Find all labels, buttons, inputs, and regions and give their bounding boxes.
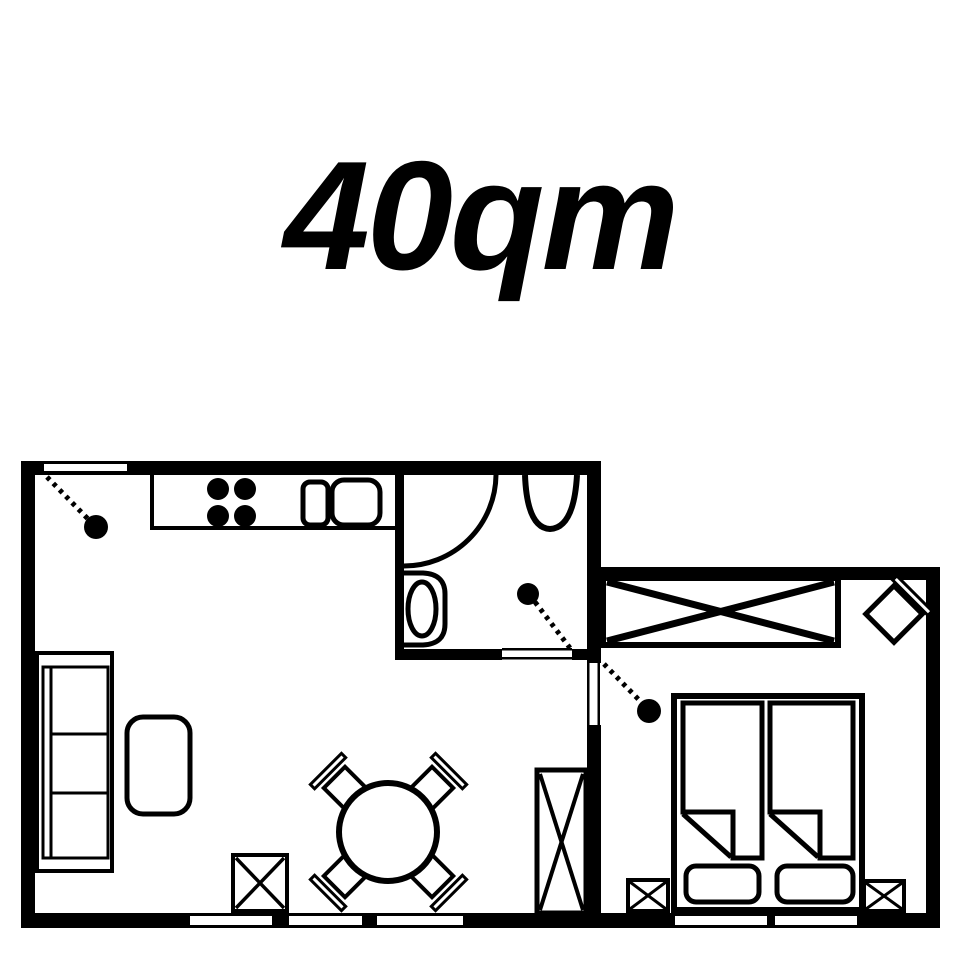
stove-burner-4: [234, 505, 256, 527]
duvet-right-fold: [770, 814, 818, 857]
washbasin: [525, 475, 577, 529]
pillow-right: [777, 866, 853, 902]
window-living-2: [289, 916, 362, 925]
floor-plan-page: 40qm: [0, 0, 960, 960]
sink-basin-small: [303, 482, 328, 525]
bathroom-door-swing-arc: [404, 475, 496, 566]
duvet-left: [683, 703, 762, 858]
window-bedroom-2: [775, 916, 857, 925]
wall-left: [21, 461, 35, 928]
coffee-table: [127, 717, 190, 814]
floor-plan-svg: [0, 0, 960, 960]
window-living-3: [377, 916, 463, 925]
bathroom-door-swing-line: [535, 602, 570, 648]
bedroom-door-knob: [637, 699, 661, 723]
duvet-right: [770, 703, 853, 858]
entry-door-slab: [44, 464, 127, 471]
wall-bedroom-right: [926, 567, 940, 928]
duvet-left-fold: [683, 814, 731, 857]
stove-burner-2: [234, 478, 256, 500]
bedroom-door-swing-line: [604, 664, 642, 703]
bedroom-door-jamb-left: [587, 663, 590, 725]
entry-door-knob: [84, 515, 108, 539]
stove-burner-1: [207, 478, 229, 500]
pillow-left: [686, 866, 759, 902]
wall-bathroom-left: [395, 461, 404, 660]
window-living-1: [190, 916, 272, 925]
bathroom-door-jamb-bottom: [502, 657, 572, 660]
entry-door-swing-line: [47, 477, 89, 520]
toilet-bowl: [408, 582, 436, 636]
bedroom-door-jamb-right: [598, 663, 601, 725]
sofa-outline: [37, 653, 112, 871]
bathroom-door-jamb-top: [502, 648, 572, 651]
sofa-inner: [43, 667, 108, 858]
dining-table: [339, 783, 437, 881]
stove-burner-3: [207, 505, 229, 527]
window-bedroom-1: [675, 916, 767, 925]
sink-basin-large: [332, 480, 380, 525]
